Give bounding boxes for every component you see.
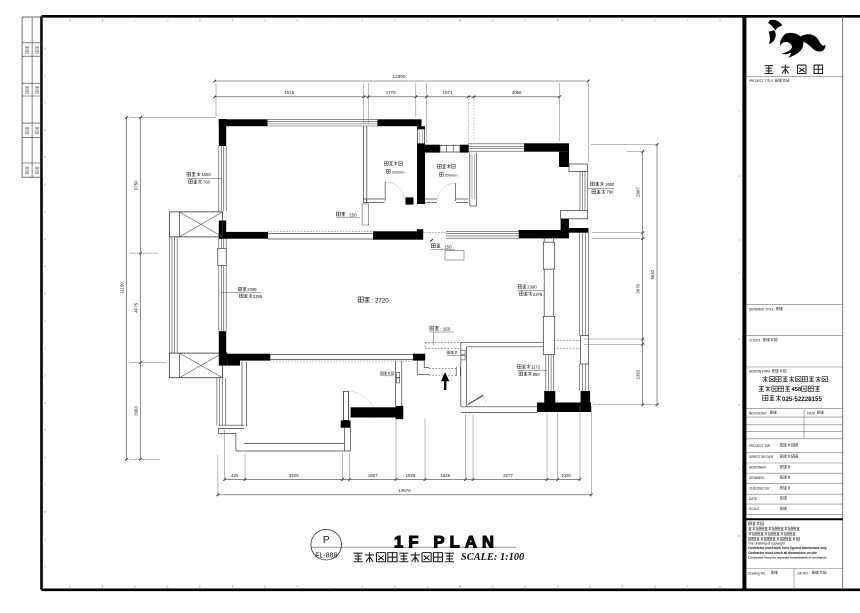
svg-text:1650: 1650 — [605, 182, 615, 187]
svg-text:960: 960 — [533, 372, 541, 377]
svg-text:2963: 2963 — [134, 406, 139, 416]
svg-text:DIRECTOR DER: DIRECTOR DER — [749, 455, 774, 459]
svg-text:3525: 3525 — [289, 473, 299, 478]
svg-text:CLIENT: CLIENT — [749, 338, 760, 342]
svg-text:Drawing NO.: Drawing NO. — [748, 571, 766, 575]
svg-text:SCALE: SCALE — [749, 507, 759, 511]
svg-text:SCALE: 1:100: SCALE: 1:100 — [461, 552, 525, 563]
svg-text:1607: 1607 — [368, 473, 378, 478]
svg-text:: 2720: : 2720 — [372, 298, 390, 305]
svg-text:D: D — [167, 20, 169, 23]
svg-text:R: R — [622, 20, 624, 23]
svg-text:CHECKED BY: CHECKED BY — [749, 487, 771, 491]
svg-text:N: N — [492, 20, 494, 23]
svg-text:4075: 4075 — [134, 302, 139, 312]
svg-text:3066: 3066 — [512, 90, 522, 95]
svg-text:The drawing is copyright: The drawing is copyright — [748, 542, 785, 546]
svg-text:G: G — [264, 586, 266, 589]
svg-text:D: D — [167, 586, 169, 589]
svg-text:2378: 2378 — [533, 292, 543, 297]
svg-text:025-52228155: 025-52228155 — [782, 396, 822, 403]
svg-text:1779: 1779 — [386, 90, 396, 95]
svg-text:3670: 3670 — [636, 283, 641, 293]
svg-text:O: O — [524, 586, 526, 589]
svg-text:1928: 1928 — [406, 473, 416, 478]
svg-text:FL-888: FL-888 — [315, 553, 337, 560]
svg-text:C: C — [134, 586, 136, 589]
svg-text:R: R — [622, 586, 624, 589]
svg-text:780: 780 — [607, 190, 615, 195]
svg-text:Job NO.: Job NO. — [797, 571, 809, 575]
svg-text:PROJECT DIR: PROJECT DIR — [749, 444, 771, 448]
svg-text:1015: 1015 — [284, 90, 294, 95]
svg-text:Contractor must check all dime: Contractor must check all dimensions on … — [748, 551, 817, 555]
svg-text:2390: 2390 — [527, 285, 537, 290]
svg-text:P: P — [323, 535, 330, 546]
svg-text:1020: 1020 — [561, 473, 571, 478]
svg-text:2395: 2395 — [247, 287, 257, 292]
svg-text:REVISIONS: REVISIONS — [749, 411, 766, 415]
svg-text:C: C — [134, 20, 136, 23]
svg-text:H: H — [297, 586, 299, 589]
svg-text:1671: 1671 — [443, 90, 453, 95]
svg-text:Q: Q — [589, 20, 591, 23]
svg-text:12900: 12900 — [393, 74, 406, 79]
svg-text:H: H — [297, 20, 299, 23]
svg-text:9642: 9642 — [650, 269, 655, 279]
svg-text:1363: 1363 — [636, 369, 641, 379]
svg-text:2395: 2395 — [253, 294, 263, 299]
svg-text:DRAWING TITLE: DRAWING TITLE — [749, 307, 774, 311]
svg-text:425: 425 — [231, 473, 239, 478]
svg-text:200mm: 200mm — [445, 172, 458, 177]
svg-text:1172: 1172 — [531, 365, 541, 370]
svg-text:: 150: : 150 — [440, 327, 450, 332]
svg-text:O: O — [524, 20, 526, 23]
svg-text:G: G — [264, 20, 266, 23]
svg-text:DATE: DATE — [749, 497, 757, 501]
svg-text:: 150: : 150 — [347, 213, 357, 218]
svg-text:DESIGNER: DESIGNER — [749, 466, 766, 470]
svg-text:N: N — [492, 586, 494, 589]
svg-text:3750: 3750 — [134, 180, 139, 190]
svg-text:M: M — [459, 586, 461, 589]
svg-text:1650: 1650 — [202, 172, 212, 177]
svg-text:2967: 2967 — [636, 187, 641, 197]
svg-text:PROJECT TITLE: PROJECT TITLE — [749, 79, 773, 83]
svg-text:2277: 2277 — [503, 473, 513, 478]
svg-text:1F PLAN: 1F PLAN — [394, 534, 499, 552]
svg-text:458: 458 — [792, 387, 802, 393]
svg-text:1526: 1526 — [440, 473, 450, 478]
svg-text:200mm: 200mm — [392, 169, 405, 174]
svg-text:760: 760 — [203, 180, 211, 185]
svg-text:13676: 13676 — [398, 488, 411, 493]
svg-text:Contractor must be reported im: Contractor must be reported immediately … — [748, 555, 827, 559]
svg-text:Q: Q — [589, 586, 591, 589]
svg-text:M: M — [459, 20, 461, 23]
svg-text:DESIGN FIRM: DESIGN FIRM — [749, 370, 770, 374]
svg-text:DATE: DATE — [807, 411, 815, 415]
svg-text:11150: 11150 — [119, 282, 124, 294]
svg-text:DRAWING: DRAWING — [749, 476, 765, 480]
svg-text:Contractor must work from figu: Contractor must work from figured dimens… — [748, 546, 827, 550]
svg-text:: 150: : 150 — [442, 244, 452, 249]
